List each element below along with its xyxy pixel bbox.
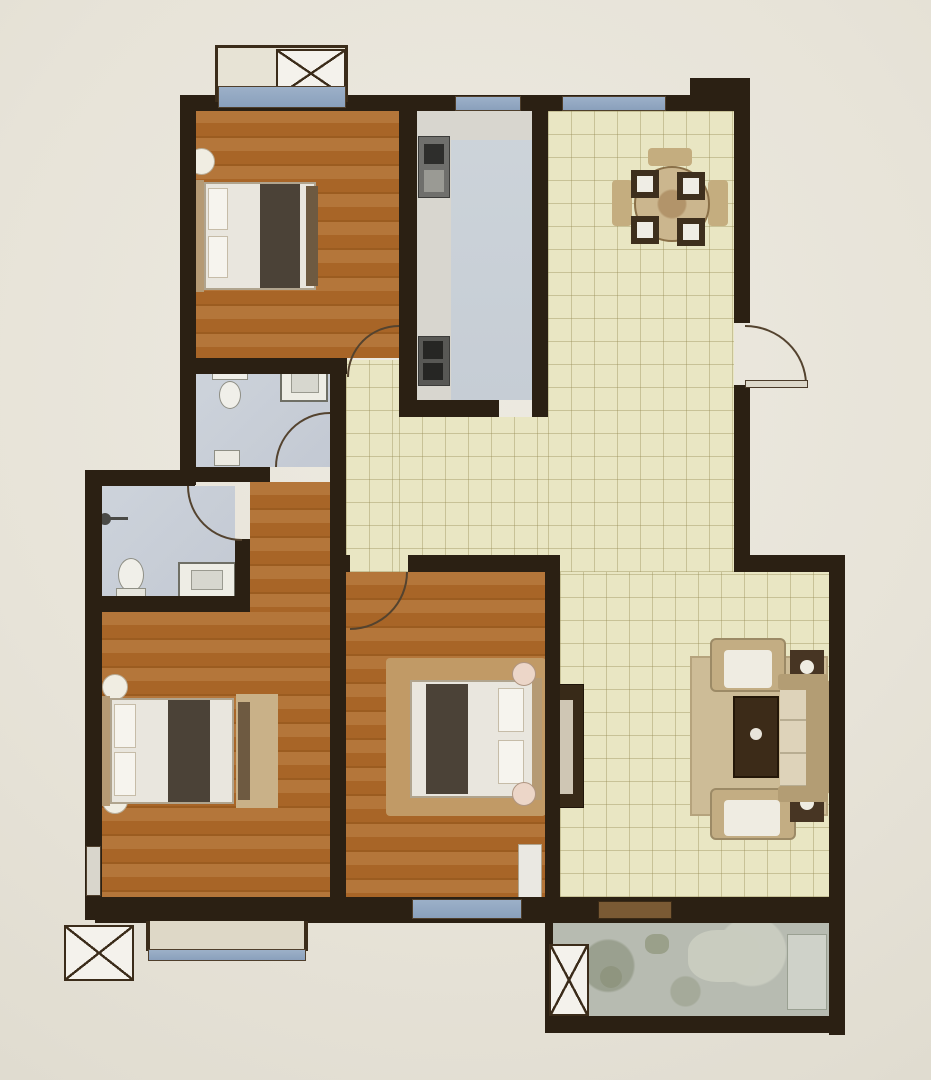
wall-balcony-bottom: [545, 1016, 845, 1033]
balcony-plant-a: [600, 966, 622, 988]
floor-plan: [0, 0, 931, 1080]
sofa-seat: [780, 688, 806, 788]
toilet1-bowl: [219, 381, 241, 409]
kitchen-burner-a: [423, 341, 443, 359]
toilet2-bowl: [118, 558, 144, 592]
wall-bed1-kitchen: [399, 95, 417, 415]
wall-bed2-right: [545, 555, 560, 923]
dining-chair-se: [677, 218, 705, 246]
bed1-blanket: [260, 184, 300, 288]
wall-bath1-bottom: [180, 467, 270, 482]
bed2-headboard: [532, 678, 542, 800]
bay-window: [146, 921, 308, 951]
bed3-pillow-a: [114, 704, 136, 748]
armchair-bottom-seat: [724, 800, 780, 836]
sink1-basin: [291, 373, 319, 393]
south-balcony-ac-unit: [549, 944, 589, 1016]
dining-chair-pad-right: [708, 180, 728, 226]
window-bedroom-middle: [412, 899, 522, 919]
door-arc-entry: [745, 325, 807, 385]
entry-door-leaf: [745, 380, 808, 388]
bath1-corner-box: [214, 450, 240, 466]
bed3-bench: [238, 702, 250, 800]
dining-chair-pad-top: [648, 148, 692, 166]
hall-notch-floor: [346, 360, 399, 572]
wall-bed1-bottom: [180, 358, 347, 374]
dining-chair-pad-left: [612, 180, 632, 226]
coffee-table-dot: [750, 728, 762, 740]
kitchen-sink-drain: [424, 170, 444, 192]
wall-right-upper: [734, 95, 750, 323]
ac-unit-bottom-left: [64, 925, 134, 981]
wall-bath2-bottom: [85, 596, 250, 612]
wall-right-lower: [829, 555, 845, 1035]
tv-screen: [559, 700, 573, 794]
dining-chair-ne: [677, 172, 705, 200]
balcony-patch: [688, 930, 760, 982]
balcony-slider: [598, 901, 672, 919]
sofa-back: [804, 680, 830, 794]
bed1-pillow-b: [208, 236, 228, 278]
armchair-top-seat: [724, 650, 772, 688]
hall-floor: [399, 417, 548, 572]
sink2-basin: [191, 570, 223, 590]
washing-machine: [787, 934, 827, 1010]
window-dining: [562, 96, 666, 111]
bed1-pillow-a: [208, 188, 228, 230]
dining-chair-sw: [631, 216, 659, 244]
balcony-plant-b: [645, 934, 669, 954]
wall-divider-mid: [330, 358, 346, 923]
bed3-blanket: [168, 700, 210, 802]
wall-left-upper: [180, 95, 196, 485]
bed2-pillow-a: [498, 688, 524, 732]
kitchen-sink-basin: [424, 144, 444, 164]
shower-arm: [108, 517, 128, 520]
wall-right-mid: [734, 385, 750, 557]
kitchen-burner-b: [423, 363, 443, 380]
bed2-lamp-a: [512, 662, 536, 686]
wall-bed2-top-stub: [330, 555, 350, 572]
wall-kitchen-right: [532, 95, 548, 417]
bed2-pillow-b: [498, 740, 524, 784]
bed2-lamp-b: [512, 782, 536, 806]
side-table-top-dot: [800, 660, 814, 674]
wall-kitchen-bottom: [399, 400, 499, 417]
bed2-dresser: [518, 844, 542, 898]
window-bedroom-top: [218, 86, 346, 108]
window-kitchen: [455, 96, 521, 111]
sofa-arm-bottom: [778, 786, 828, 802]
dining-chair-nw: [631, 170, 659, 198]
window-bedroom-left: [86, 846, 101, 896]
bed1-bench: [306, 186, 318, 286]
window-bay-band: [148, 949, 306, 961]
bed2-blanket: [426, 684, 468, 794]
sofa-arm-top: [778, 674, 828, 690]
bed3-pillow-b: [114, 752, 136, 796]
passage-floor: [250, 482, 330, 612]
wall-bed2-top: [408, 555, 560, 572]
